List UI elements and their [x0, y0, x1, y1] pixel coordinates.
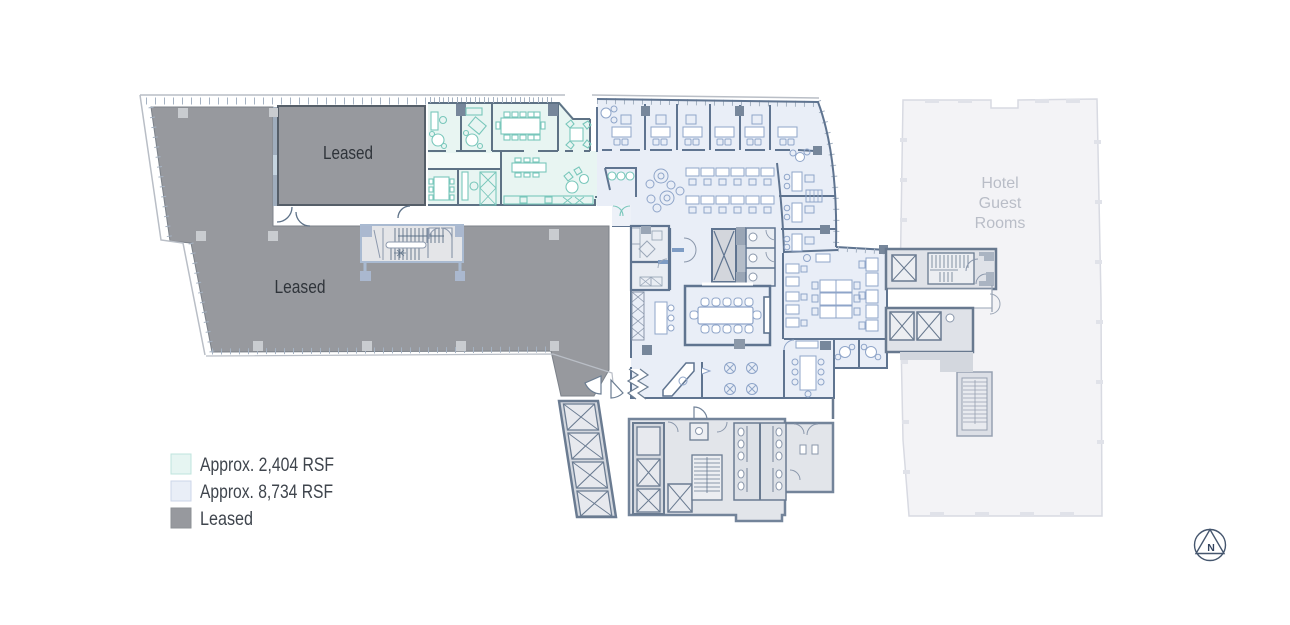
svg-text:Hotel: Hotel — [981, 175, 1018, 192]
svg-text:Approx. 2,404 RSF: Approx. 2,404 RSF — [200, 454, 334, 476]
svg-text:Leased: Leased — [275, 277, 326, 297]
svg-text:N: N — [1207, 542, 1215, 554]
svg-text:Leased: Leased — [323, 143, 373, 163]
svg-text:Guest: Guest — [979, 195, 1022, 212]
svg-text:Leased: Leased — [200, 508, 253, 530]
svg-text:Rooms: Rooms — [975, 215, 1026, 232]
svg-text:Approx. 8,734 RSF: Approx. 8,734 RSF — [200, 481, 333, 503]
